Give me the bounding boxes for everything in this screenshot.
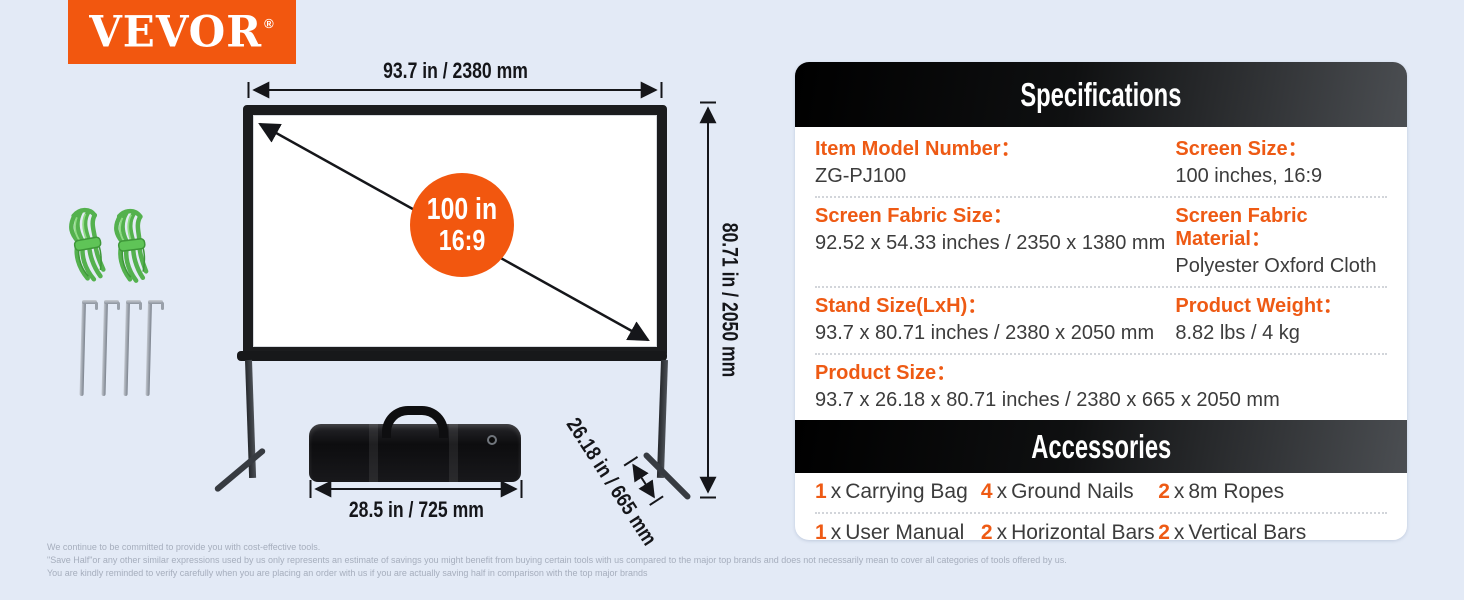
accessory-user-manual: 1xUser Manual	[815, 521, 981, 540]
ground-nail	[82, 300, 100, 398]
bag-eyelet	[487, 435, 497, 445]
ground-nail	[104, 300, 122, 398]
bag-width-dimension-label: 28.5 in / 725 mm	[309, 497, 523, 523]
accessory-ground-nails: 4xGround Nails	[981, 480, 1158, 504]
accessories-row: 1xUser Manual 2xHorizontal Bars 2xVertic…	[815, 514, 1387, 540]
bag-width-dimension-arrow	[309, 479, 523, 499]
spec-product-size: Product Size： 93.7 x 26.18 x 80.71 inche…	[815, 362, 1387, 412]
disclaimer-line: We continue to be committed to provide y…	[47, 541, 1067, 554]
specifications-title: Specifications	[1020, 76, 1181, 114]
bag-strap	[449, 424, 458, 482]
spec-item-model-number: Item Model Number： ZG-PJ100	[815, 138, 1175, 188]
spec-row: Item Model Number： ZG-PJ100 Screen Size：…	[815, 131, 1387, 198]
disclaimer-line: "Save Half"or any other similar expressi…	[47, 554, 1067, 567]
disclaimer-line: You are kindly reminded to verify carefu…	[47, 567, 1067, 580]
registered-trademark-icon: ®	[264, 16, 275, 31]
brand-logo-text: VEVOR®	[89, 11, 275, 54]
accessory-carrying-bag: 1xCarrying Bag	[815, 480, 981, 504]
accessory-ropes: 2x8m Ropes	[1158, 480, 1387, 504]
accessories-title: Accessories	[1031, 428, 1171, 466]
carrying-bag	[309, 424, 521, 482]
spec-stand-size: Stand Size(LxH)： 93.7 x 80.71 inches / 2…	[815, 295, 1175, 345]
bag-strap	[369, 424, 378, 482]
spec-row: Product Size： 93.7 x 26.18 x 80.71 inche…	[815, 355, 1387, 420]
ground-nail	[126, 300, 144, 398]
stand-foot-left	[214, 447, 267, 493]
accessories-header: Accessories	[795, 420, 1407, 473]
accessory-vertical-bars: 2xVertical Bars	[1158, 521, 1387, 540]
spec-product-weight: Product Weight： 8.82 lbs / 4 kg	[1175, 295, 1387, 345]
disclaimer-text: We continue to be committed to provide y…	[47, 541, 1067, 580]
badge-size-text: 100 in	[427, 192, 497, 226]
specifications-header: Specifications	[795, 62, 1407, 127]
spec-row: Stand Size(LxH)： 93.7 x 80.71 inches / 2…	[815, 288, 1387, 355]
bag-handle	[382, 406, 448, 438]
stand-leg-right	[657, 360, 668, 478]
accessories-body: 1xCarrying Bag 4xGround Nails 2x8m Ropes…	[795, 473, 1407, 540]
accessories-row: 1xCarrying Bag 4xGround Nails 2x8m Ropes	[815, 473, 1387, 514]
screen-size-badge: 100 in 16:9	[410, 173, 514, 277]
info-panel: Specifications Item Model Number： ZG-PJ1…	[795, 62, 1407, 540]
spec-row: Screen Fabric Size： 92.52 x 54.33 inches…	[815, 198, 1387, 288]
ground-nail	[148, 300, 166, 398]
brand-logo: VEVOR®	[68, 0, 296, 64]
brand-name: VEVOR	[89, 7, 262, 57]
screen-width-dimension-arrow	[247, 81, 663, 99]
spec-screen-fabric-material: Screen Fabric Material： Polyester Oxford…	[1175, 205, 1387, 278]
screen-height-dimension-label: 80.71 in / 2050 mm	[708, 101, 752, 499]
rope-bundle	[105, 205, 156, 290]
badge-ratio-text: 16:9	[439, 226, 485, 258]
spec-screen-size: Screen Size： 100 inches, 16:9	[1175, 138, 1387, 188]
page-background: VEVOR® 93.7 in / 2380 mm 100 in 16:9 80.…	[0, 0, 1464, 600]
specifications-body: Item Model Number： ZG-PJ100 Screen Size：…	[795, 127, 1407, 420]
accessory-horizontal-bars: 2xHorizontal Bars	[981, 521, 1158, 540]
spec-screen-fabric-size: Screen Fabric Size： 92.52 x 54.33 inches…	[815, 205, 1175, 278]
